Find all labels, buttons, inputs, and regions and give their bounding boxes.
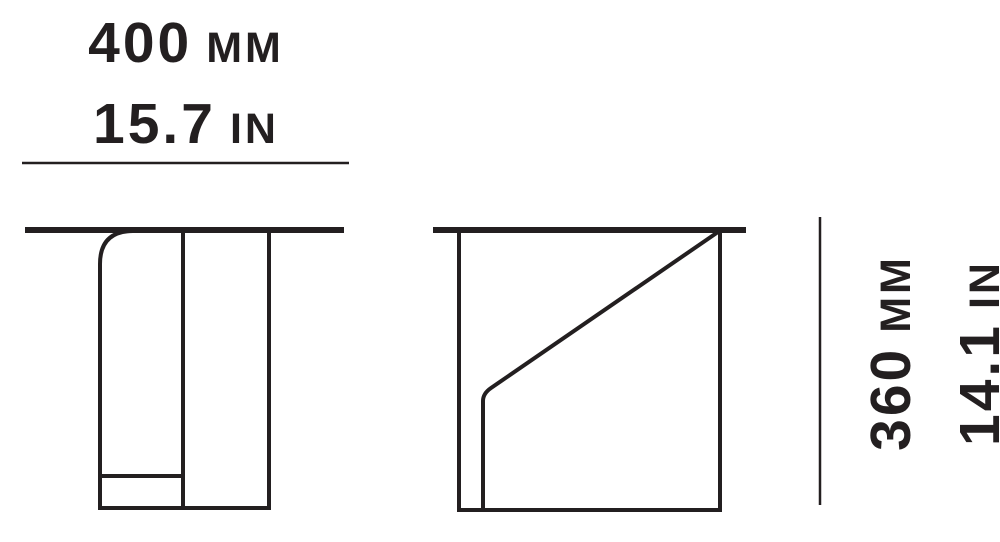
side-outline — [459, 231, 720, 510]
height-mm-unit: MM — [872, 255, 920, 333]
width-in-unit: IN — [230, 105, 279, 153]
width-mm-value: 400 — [88, 11, 192, 75]
front-view — [25, 230, 344, 508]
width-dimension-mm: 400MM — [0, 10, 372, 91]
height-in-value: 14.1 — [948, 323, 1000, 446]
width-dimension-label: 400MM 15.7IN — [0, 10, 372, 172]
width-dimension-in: 15.7IN — [0, 91, 372, 172]
height-dimension-mm: 360MM — [854, 203, 943, 503]
height-in-unit: IN — [961, 260, 1000, 309]
drawing-canvas: 400MM 15.7IN 360MM 14.1IN — [0, 0, 1000, 542]
height-dimension-label: 360MM 14.1IN — [854, 203, 1000, 503]
side-view — [433, 230, 746, 510]
width-in-value: 15.7 — [93, 92, 216, 156]
width-mm-unit: MM — [206, 24, 284, 72]
height-dimension-in: 14.1IN — [943, 203, 1000, 503]
height-mm-value: 360 — [859, 347, 923, 451]
side-diagonal-brace-line — [483, 232, 718, 510]
